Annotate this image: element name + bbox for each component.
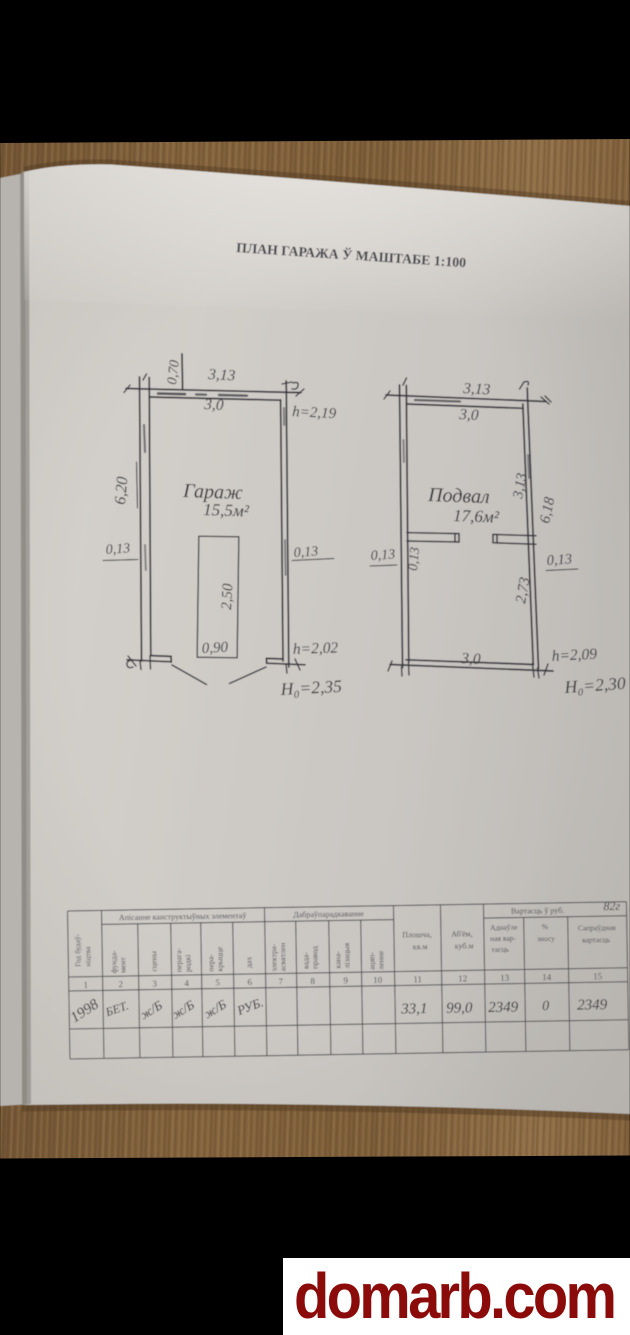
- svg-text:domarb.com: domarb.com: [294, 1260, 614, 1331]
